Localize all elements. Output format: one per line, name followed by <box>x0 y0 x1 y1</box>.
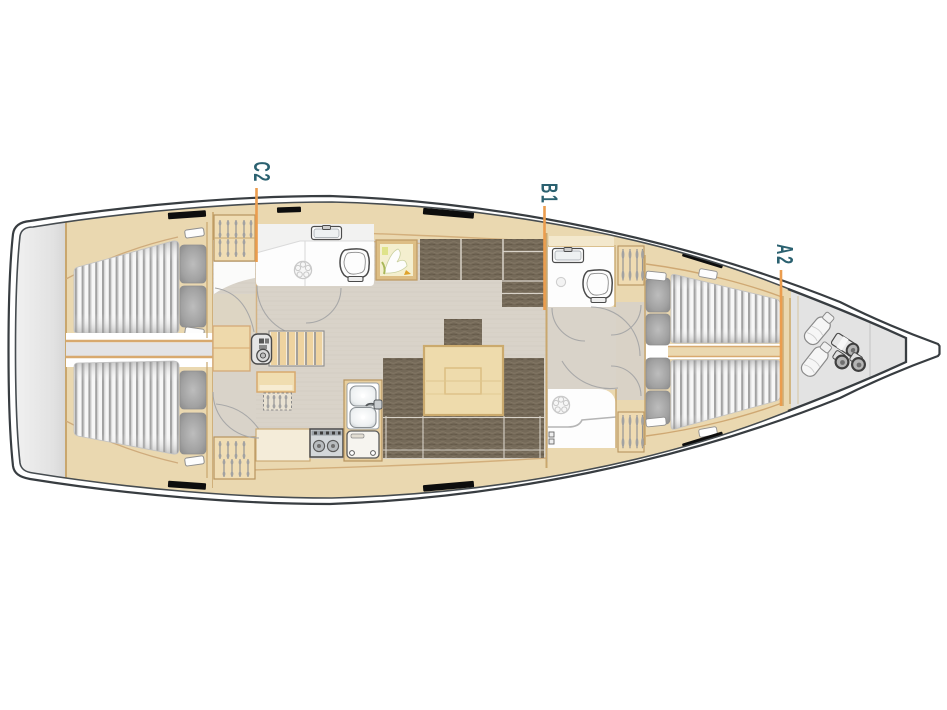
svg-text:B1: B1 <box>535 183 560 204</box>
svg-text:A2: A2 <box>771 244 796 266</box>
svg-text:C2: C2 <box>248 162 273 183</box>
